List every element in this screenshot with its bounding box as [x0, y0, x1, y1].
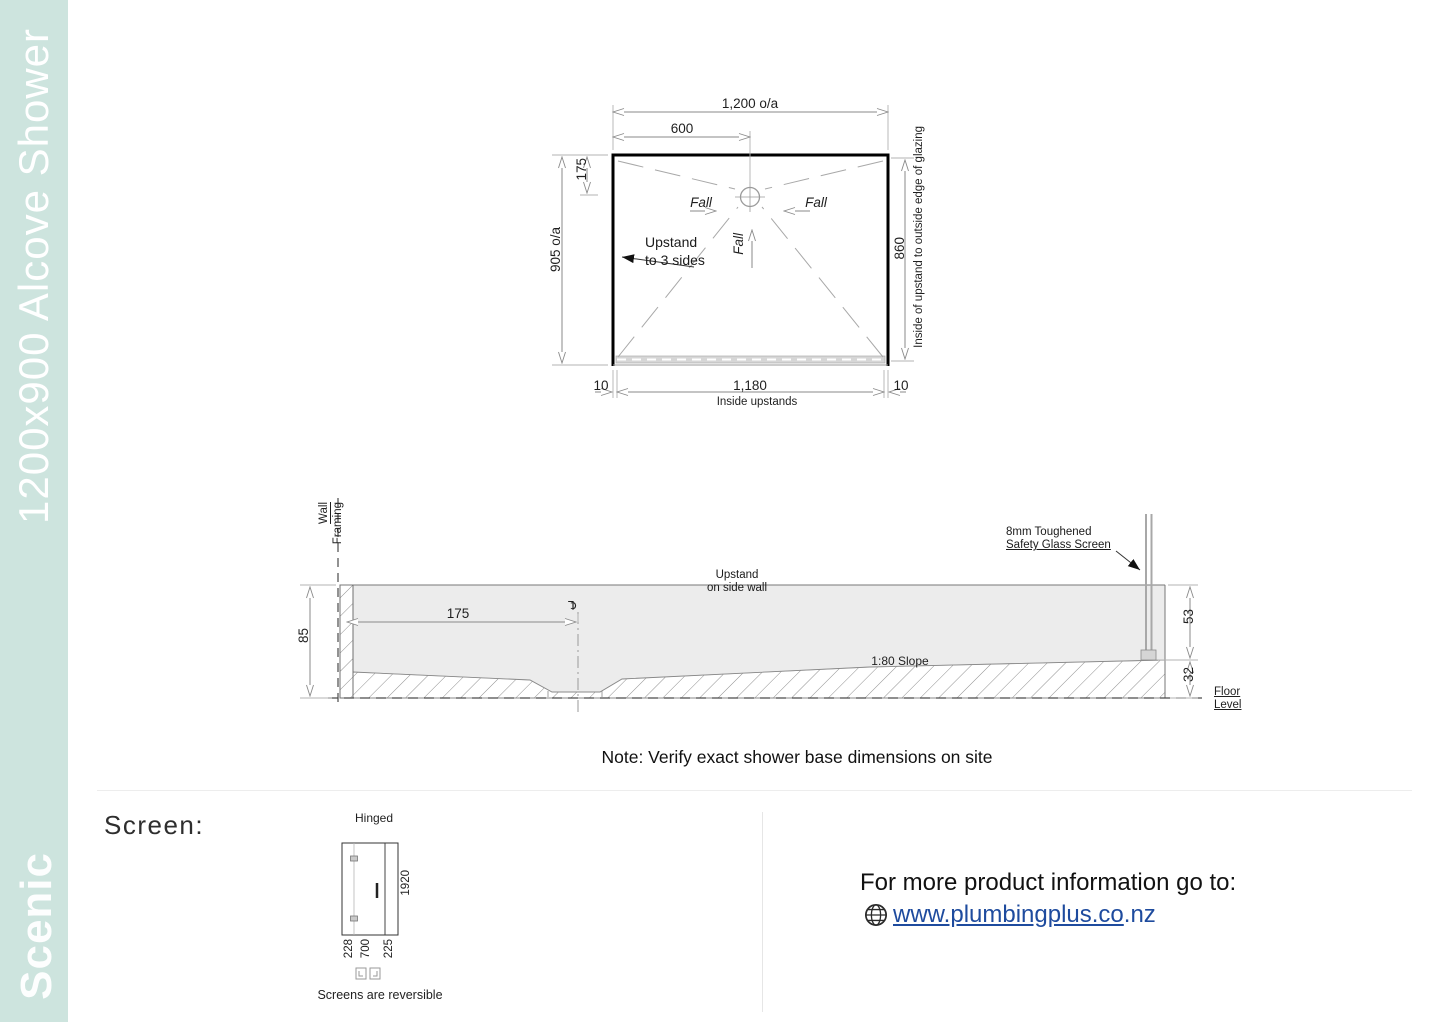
- section-dim-drain-offset: 175: [447, 606, 470, 622]
- plan-fall-right-label: Fall: [805, 195, 827, 211]
- plan-dim-upstand-right: 10: [893, 378, 908, 394]
- floor-level-label: Floor Level: [1214, 686, 1242, 712]
- screen-elevation: [342, 843, 398, 979]
- plan-upstand-note: Upstand to 3 sides: [645, 233, 705, 269]
- section-slope-label: 1:80 Slope: [871, 655, 928, 669]
- section-dim-height: 85: [296, 628, 312, 643]
- screen-dim-right: 225: [383, 939, 396, 958]
- sidebar: 1200x900 Alcove Shower Scenic: [0, 0, 68, 1022]
- section-wall-label-1: Wall: [318, 502, 331, 524]
- plan-dim-overall-depth: 905 o/a: [548, 227, 564, 272]
- website-row: www.plumbingplus.co.nz: [864, 901, 1156, 929]
- screen-type-label: Hinged: [355, 812, 393, 826]
- drawing-sheet: 1200x900 Alcove Shower Scenic: [0, 0, 1445, 1022]
- screen-dim-mid: 700: [360, 939, 373, 958]
- globe-icon: [864, 903, 888, 927]
- plan-dim-drain-y: 175: [574, 158, 590, 181]
- plan-glazing-caption: Inside of upstand to outside edge of gla…: [913, 126, 926, 348]
- screen-reversible-caption: Screens are reversible: [317, 988, 442, 1002]
- section-centerline-symbol: ℄: [566, 598, 580, 612]
- section-dim-base: 32: [1181, 667, 1197, 682]
- plan-dim-overall-width: 1,200 o/a: [722, 96, 778, 112]
- section-upstand-label: Upstand on side wall: [707, 569, 767, 595]
- brand-logo: Scenic: [12, 852, 63, 1000]
- plan-dim-glazing: 860: [892, 237, 908, 260]
- screen-heading: Screen:: [104, 811, 204, 841]
- plan-fall-left-label: Fall: [690, 195, 712, 211]
- plan-fall-center-label: Fall: [731, 233, 747, 255]
- product-title: 1200x900 Alcove Shower: [10, 28, 58, 524]
- section-wall-label-2: Framing: [332, 502, 345, 544]
- plan-dim-inside: 1,180: [733, 378, 767, 394]
- info-line: For more product information go to:: [860, 869, 1236, 897]
- section-dim-rim: 53: [1181, 609, 1197, 624]
- horizontal-divider: [97, 790, 1412, 791]
- glass-screen-label: 8mm Toughened Safety Glass Screen: [1006, 526, 1111, 552]
- plan-inside-caption: Inside upstands: [717, 396, 798, 409]
- plan-dim-drain-x: 600: [671, 121, 694, 137]
- screen-dim-left: 228: [343, 939, 356, 958]
- plan-dim-upstand-left: 10: [593, 378, 608, 394]
- verify-note: Note: Verify exact shower base dimension…: [601, 747, 992, 767]
- website-link[interactable]: www.plumbingplus.co.nz: [893, 901, 1156, 929]
- screen-dim-height: 1920: [400, 870, 413, 896]
- vertical-divider: [762, 812, 763, 1012]
